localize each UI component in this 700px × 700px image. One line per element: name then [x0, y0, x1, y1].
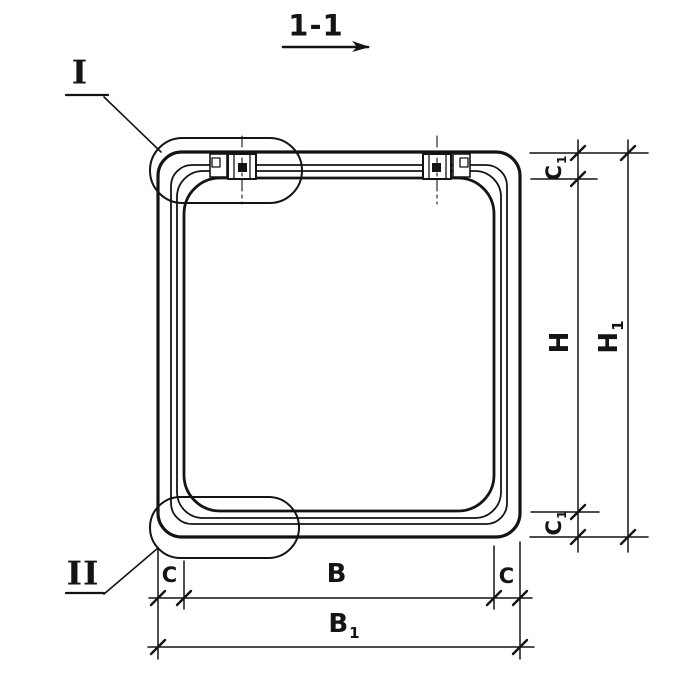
dim-label-B1: B1 [328, 611, 359, 641]
detail-callout-I-label: I [72, 56, 88, 89]
detail-region-boundaries [150, 138, 302, 558]
frame-liner-band [171, 165, 507, 524]
detail-callout-II-label: II [67, 557, 100, 590]
callout-I-leader [104, 97, 161, 152]
dim-label-C-right: C [499, 566, 515, 590]
fitting-centerlines [242, 136, 437, 204]
clamp-fitting-left [210, 154, 256, 179]
frame-outer-shell [158, 152, 520, 537]
detail-region-II [150, 497, 299, 558]
title-underline [283, 41, 370, 52]
dim-label-H: H [547, 331, 577, 354]
dim-label-C1-bottom: C1 [544, 511, 568, 536]
callout-II-leader [104, 548, 158, 594]
section-drawing-sheet: 1-1 I II C B C B1 C1 H H1 C1 [0, 0, 700, 700]
callout-leaders [66, 95, 161, 594]
dim-label-C1-top: C1 [544, 156, 568, 181]
clamp-fitting-right [423, 154, 470, 179]
dim-label-C-left: C [162, 565, 178, 589]
section-title: 1-1 [288, 12, 343, 41]
dim-label-B: B [327, 561, 348, 591]
dim-label-H1: H1 [596, 320, 626, 353]
